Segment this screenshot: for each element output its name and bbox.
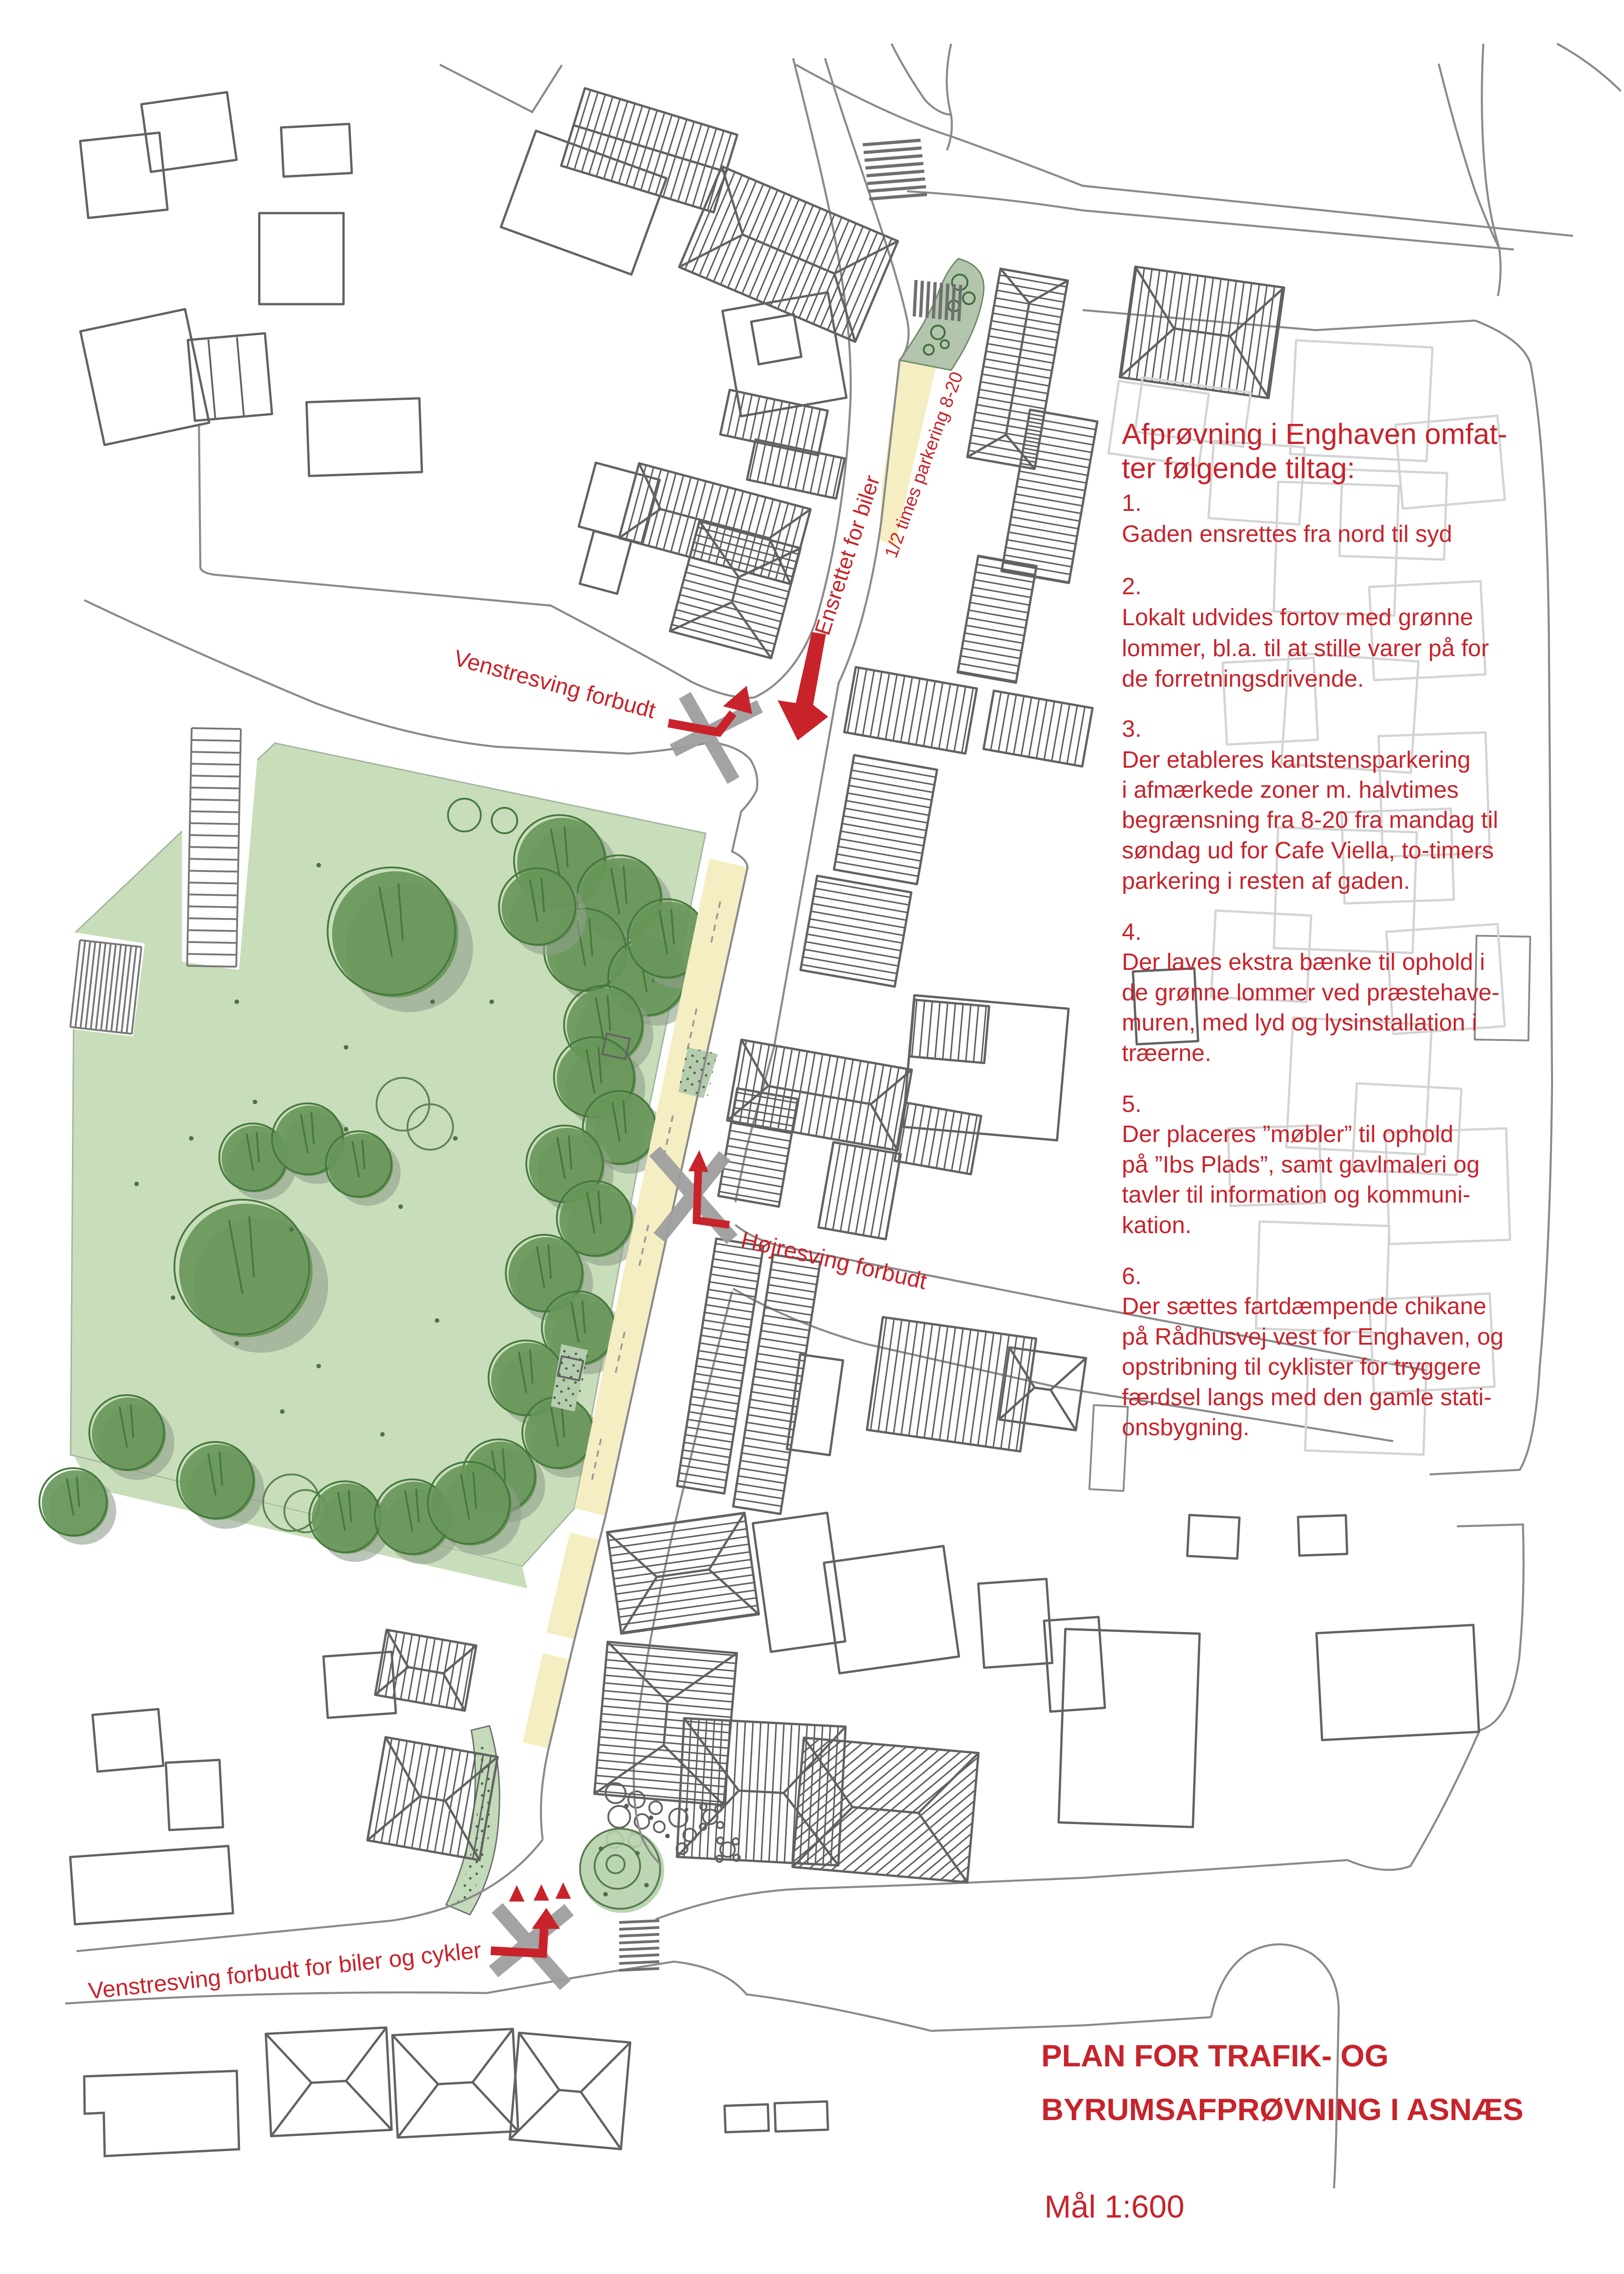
svg-text:begrænsning fra 8-20 fra manda: begrænsning fra 8-20 fra mandag til: [1122, 807, 1498, 833]
svg-text:tavler til information og komm: tavler til information og kommuni-: [1122, 1182, 1471, 1208]
svg-text:på ”Ibs Plads”, samt gavlmaler: på ”Ibs Plads”, samt gavlmaleri og: [1122, 1152, 1480, 1178]
svg-text:parkering i resten af gaden.: parkering i resten af gaden.: [1122, 868, 1410, 894]
svg-text:Der sættes fartdæmpende chikan: Der sættes fartdæmpende chikane: [1122, 1293, 1487, 1320]
svg-text:Gaden ensrettes fra nord til s: Gaden ensrettes fra nord til syd: [1122, 521, 1452, 547]
svg-text:Lokalt udvides fortov med grøn: Lokalt udvides fortov med grønne: [1122, 604, 1473, 631]
svg-text:4.: 4.: [1122, 919, 1141, 945]
svg-text:på Rådhusvej vest for Enghaven: på Rådhusvej vest for Enghaven, og: [1122, 1324, 1503, 1350]
svg-text:Mål 1:600: Mål 1:600: [1044, 2189, 1184, 2224]
svg-text:PLAN FOR TRAFIK- OG: PLAN FOR TRAFIK- OG: [1041, 2039, 1389, 2073]
svg-text:ter følgende tiltag:: ter følgende tiltag:: [1122, 452, 1355, 484]
svg-text:1.: 1.: [1122, 490, 1141, 516]
svg-text:3.: 3.: [1122, 716, 1141, 742]
svg-text:muren, med lyd og lysinstallat: muren, med lyd og lysinstallation i: [1122, 1010, 1477, 1036]
svg-text:5.: 5.: [1122, 1091, 1141, 1117]
svg-text:færdsel langs med den gamle st: færdsel langs med den gamle stati-: [1122, 1384, 1492, 1411]
svg-text:Der etableres kantstensparkeri: Der etableres kantstensparkering: [1122, 747, 1471, 773]
svg-text:Der placeres ”møbler” til opho: Der placeres ”møbler” til ophold: [1122, 1121, 1453, 1147]
svg-text:2.: 2.: [1122, 573, 1141, 600]
svg-text:i afmærkede zoner m. halvtimes: i afmærkede zoner m. halvtimes: [1122, 777, 1459, 803]
svg-text:træerne.: træerne.: [1122, 1040, 1212, 1066]
svg-text:søndag ud for Cafe Viella, to-: søndag ud for Cafe Viella, to-timers: [1122, 837, 1494, 864]
svg-text:BYRUMSAFPRØVNING I ASNÆS: BYRUMSAFPRØVNING I ASNÆS: [1041, 2092, 1523, 2127]
svg-text:de forretningsdrivende.: de forretningsdrivende.: [1122, 666, 1364, 692]
svg-text:lommer, bl.a. til at stille va: lommer, bl.a. til at stille varer på for: [1122, 635, 1489, 662]
svg-text:onsbygning.: onsbygning.: [1122, 1414, 1249, 1441]
svg-text:Afprøvning i Enghaven omfat-: Afprøvning i Enghaven omfat-: [1122, 418, 1507, 450]
svg-text:opstribning til cyklister for: opstribning til cyklister for tryggere: [1122, 1354, 1481, 1380]
svg-text:kation.: kation.: [1122, 1212, 1191, 1239]
svg-text:Der laves ekstra bænke til oph: Der laves ekstra bænke til ophold i: [1122, 949, 1485, 975]
svg-text:6.: 6.: [1122, 1263, 1141, 1290]
svg-text:de grønne lommer ved præstehav: de grønne lommer ved præstehave-: [1122, 979, 1500, 1006]
